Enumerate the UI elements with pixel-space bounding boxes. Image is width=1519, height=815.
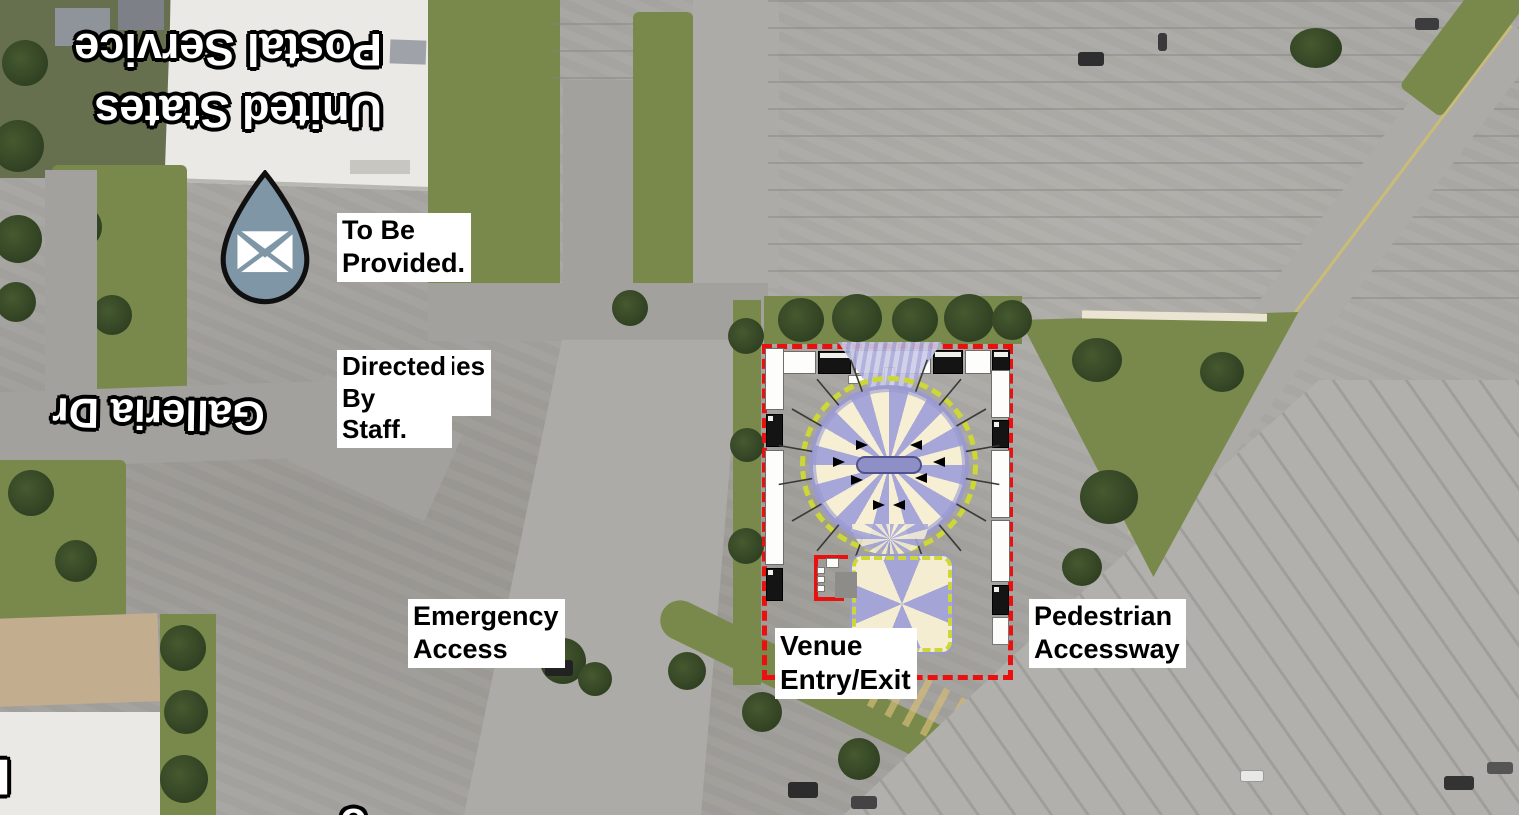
aerial-site-map: United StatesPostal Service Galleria Dr …	[0, 0, 1519, 815]
equipment-box	[817, 567, 825, 574]
tree	[1072, 338, 1122, 382]
equipment-box	[826, 558, 839, 568]
usps-street-label: United StatesPostal Service	[0, 18, 382, 142]
car	[788, 782, 818, 798]
tree	[578, 662, 612, 696]
van	[992, 617, 1009, 645]
equipment-box	[817, 576, 825, 583]
grass-median-venue	[733, 300, 761, 685]
tree	[1062, 548, 1102, 586]
tree	[8, 470, 54, 516]
tree	[1080, 470, 1138, 524]
tree	[728, 318, 764, 354]
partial-building-letter: F	[0, 748, 11, 806]
tree	[160, 755, 208, 803]
emergency-access-label: Emergency Access	[408, 599, 565, 668]
tree	[668, 652, 706, 690]
tree	[160, 625, 206, 671]
tan-roof-building	[0, 613, 160, 707]
tree	[992, 300, 1032, 340]
tent-direction-markers	[833, 440, 945, 510]
tree	[892, 298, 938, 342]
tree	[838, 738, 880, 780]
temporary-parking-line4: Directed By Staff.	[337, 350, 452, 448]
tree	[832, 294, 882, 342]
rooftop-edge	[350, 160, 410, 174]
car	[1158, 33, 1167, 51]
grass-median	[633, 12, 693, 288]
galleria-dr-label: Galleria Dr	[6, 387, 312, 440]
pedestrian-accessway-label: Pedestrian Accessway	[1029, 599, 1186, 668]
tree	[730, 428, 764, 462]
road-east-west	[428, 283, 768, 341]
car	[1078, 52, 1104, 66]
tree	[944, 294, 994, 342]
road-north	[693, 0, 779, 288]
envelope-icon	[237, 231, 292, 272]
driveway	[45, 170, 97, 395]
white-roof-building	[0, 712, 161, 815]
partial-edge-letter: o	[340, 798, 367, 815]
car	[1487, 762, 1513, 774]
car	[1415, 18, 1439, 30]
equipment	[835, 572, 857, 598]
venue-entry-label: Venue Entry/Exit	[775, 628, 917, 699]
rooftop-unit	[390, 39, 427, 64]
tree	[92, 295, 132, 335]
tree	[778, 298, 824, 342]
tree	[612, 290, 648, 326]
postal-service-location-marker	[214, 170, 316, 316]
tree	[55, 540, 97, 582]
usps-label-line1: United States	[94, 86, 382, 137]
tree	[728, 528, 764, 564]
car	[1444, 776, 1474, 790]
car	[1240, 770, 1264, 782]
tent-center-stage	[857, 457, 921, 473]
tree	[164, 690, 208, 734]
equipment-box	[817, 585, 825, 592]
usps-label-line2: Postal Service	[74, 24, 382, 75]
tree	[1200, 352, 1244, 392]
car	[851, 796, 877, 809]
driveway	[563, 80, 633, 290]
truck-cab	[992, 585, 1009, 615]
tree	[1290, 28, 1342, 68]
parking-annotation-line2: To Be Provided.	[337, 213, 471, 282]
